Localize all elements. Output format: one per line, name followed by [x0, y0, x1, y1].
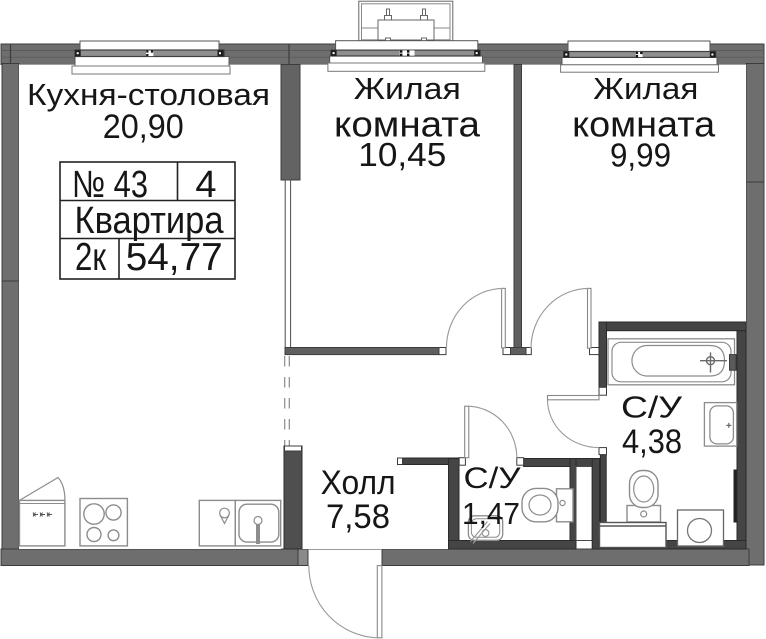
svg-text:20,90: 20,90: [103, 108, 184, 146]
svg-text:4,38: 4,38: [622, 423, 682, 461]
svg-text:Жилая: Жилая: [593, 71, 698, 106]
svg-text:Холл: Холл: [321, 464, 396, 502]
svg-text:Кухня-столовая: Кухня-столовая: [27, 77, 270, 112]
svg-text:10,45: 10,45: [358, 136, 446, 173]
svg-text:9,99: 9,99: [610, 137, 671, 174]
svg-text:2к: 2к: [75, 236, 107, 279]
svg-text:54,77: 54,77: [126, 236, 223, 279]
svg-text:С/У: С/У: [464, 462, 522, 495]
svg-text:Жилая: Жилая: [354, 71, 461, 106]
svg-text:С/У: С/У: [621, 390, 682, 425]
svg-text:7,58: 7,58: [326, 498, 390, 536]
svg-text:1,47: 1,47: [462, 496, 520, 531]
